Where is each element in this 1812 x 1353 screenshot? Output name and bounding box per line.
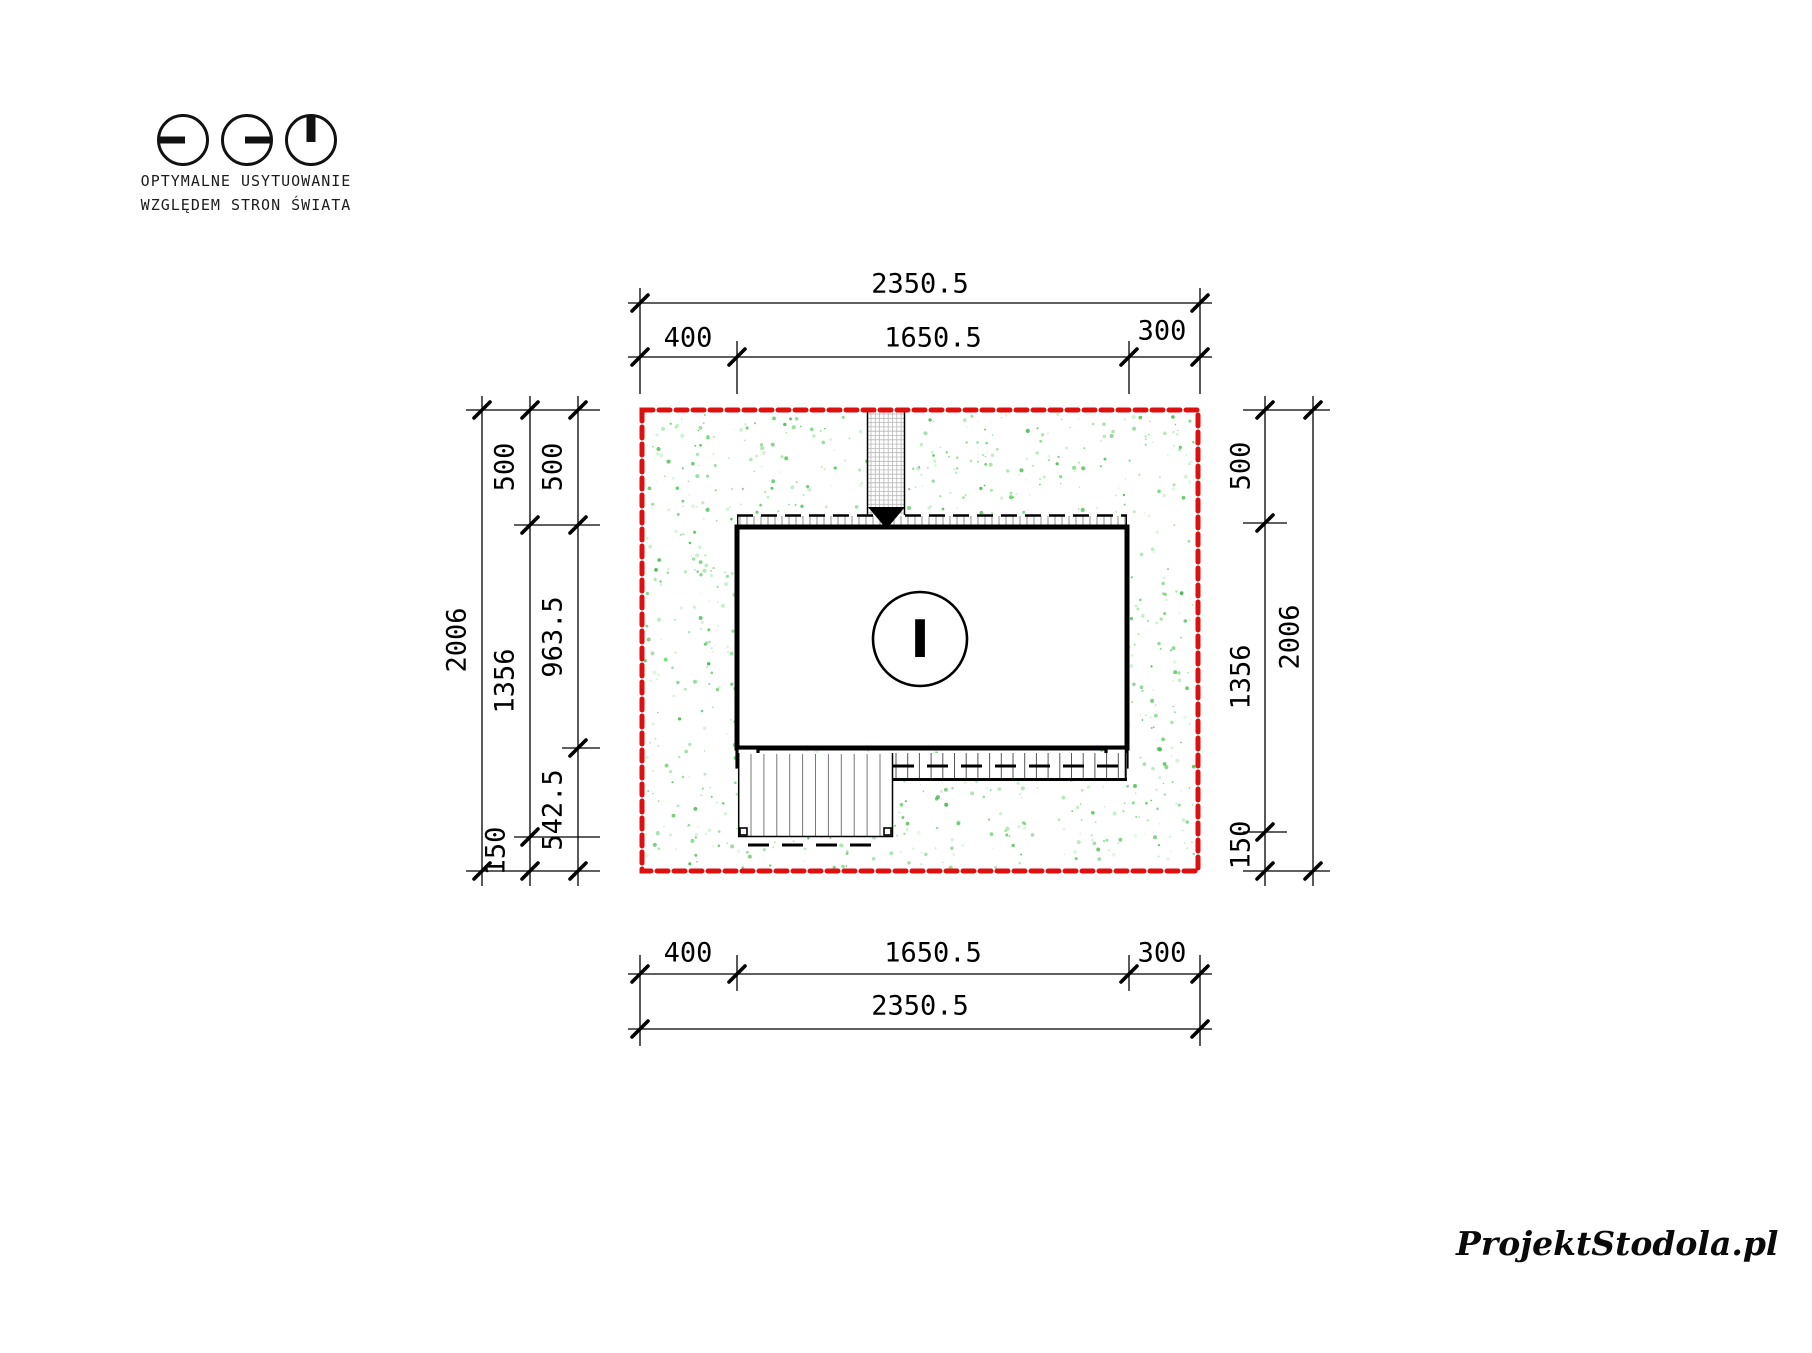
deck-post xyxy=(884,828,891,835)
deck-post xyxy=(740,828,747,835)
dim-bottom-seg2: 1650.5 xyxy=(884,940,982,967)
dim-right-inner2: 1356 xyxy=(1228,644,1255,709)
dim-left-inner3: 542.5 xyxy=(540,769,567,850)
dim-bottom-seg3: 300 xyxy=(1138,940,1187,967)
dim-left-inner2: 963.5 xyxy=(540,596,567,677)
dim-top-seg2: 1650.5 xyxy=(884,325,982,352)
site-plan-page: OPTYMALNE USYTUOWANIE WZGLĘDEM STRON ŚWI… xyxy=(0,0,1812,1353)
watermark-logo: ProjektStodola.pl xyxy=(1456,1224,1778,1263)
entrance-walkway xyxy=(867,410,905,516)
dim-left-mid3: 150 xyxy=(483,827,510,876)
site-plan-drawing: I xyxy=(0,0,1812,1353)
dim-bottom-total: 2350.5 xyxy=(871,993,969,1020)
story-marker: I xyxy=(873,592,967,686)
dim-bottom-seg1: 400 xyxy=(664,940,713,967)
dim-right-total: 2006 xyxy=(1277,604,1304,669)
dim-left-mid1: 500 xyxy=(492,443,519,492)
dim-right-inner3: 150 xyxy=(1228,821,1255,870)
dim-left-inner1: 500 xyxy=(540,443,567,492)
dim-right-inner1: 500 xyxy=(1228,442,1255,491)
dim-top-seg1: 400 xyxy=(664,325,713,352)
story-number-label: I xyxy=(910,610,929,670)
dim-top-total: 2350.5 xyxy=(871,271,969,298)
dim-left-total: 2006 xyxy=(444,607,471,672)
dim-left-mid2: 1356 xyxy=(492,648,519,713)
dim-top-seg3: 300 xyxy=(1138,318,1187,345)
